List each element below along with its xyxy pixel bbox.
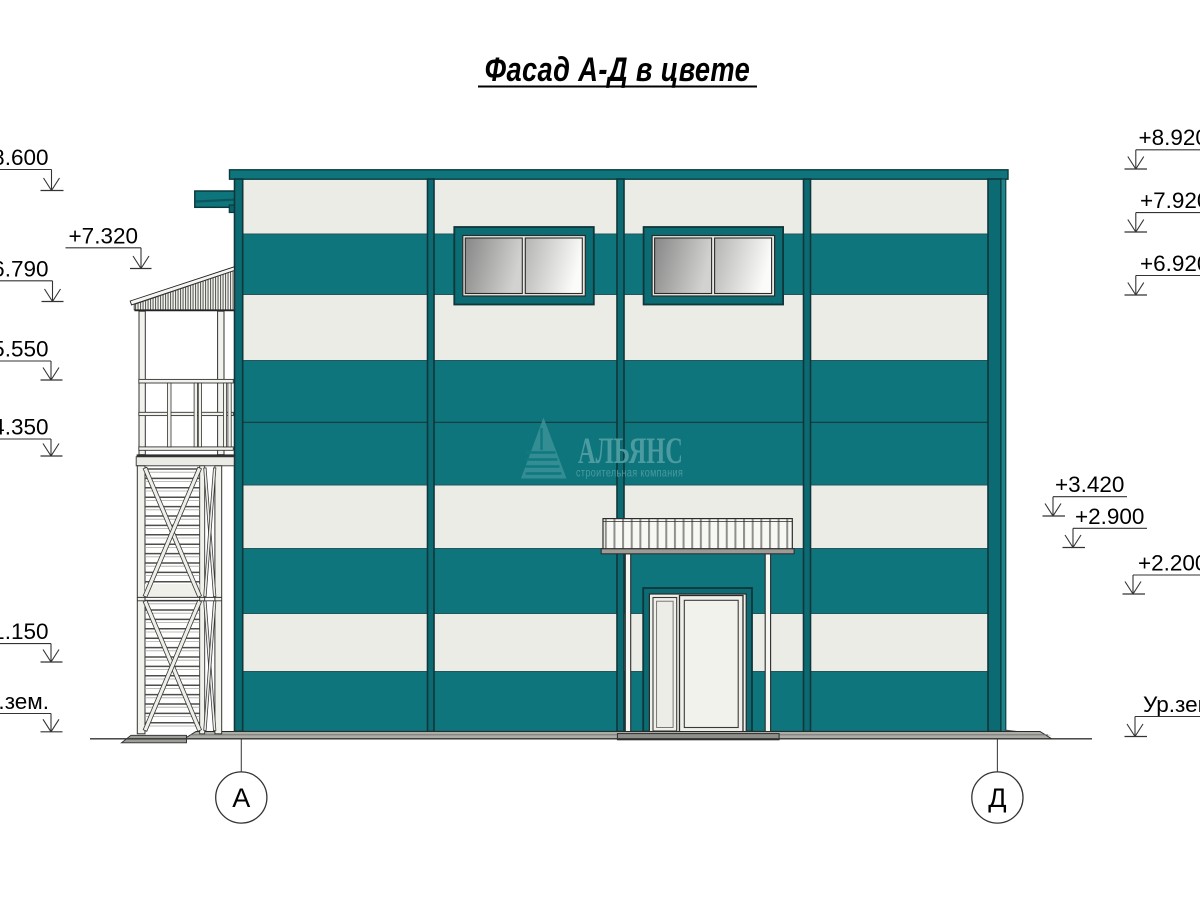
svg-text:Ур.зем.: Ур.зем. [0,689,49,714]
svg-text:Д: Д [988,783,1006,813]
svg-text:+2.900: +2.900 [1075,504,1144,529]
svg-text:+7.920: +7.920 [1140,188,1200,213]
svg-text:Фасад А-Д в цвете: Фасад А-Д в цвете [485,50,750,89]
svg-text:+4.350: +4.350 [0,415,49,440]
svg-text:строительная компания: строительная компания [576,467,683,479]
svg-text:Ур.зем.: Ур.зем. [1143,692,1200,717]
svg-text:+2.200: +2.200 [1138,551,1200,576]
svg-text:+6.920: +6.920 [1140,251,1200,276]
svg-text:+7.320: +7.320 [69,223,138,248]
svg-text:АЛЬЯНС: АЛЬЯНС [578,430,683,471]
svg-text:+3.420: +3.420 [1055,472,1124,497]
svg-text:+1.150: +1.150 [0,619,49,644]
svg-text:+6.790: +6.790 [0,256,49,281]
svg-text:+8.920: +8.920 [1139,125,1200,150]
svg-text:+5.550: +5.550 [0,337,49,362]
svg-text:А: А [232,783,250,813]
svg-text:+8.600: +8.600 [0,145,49,170]
